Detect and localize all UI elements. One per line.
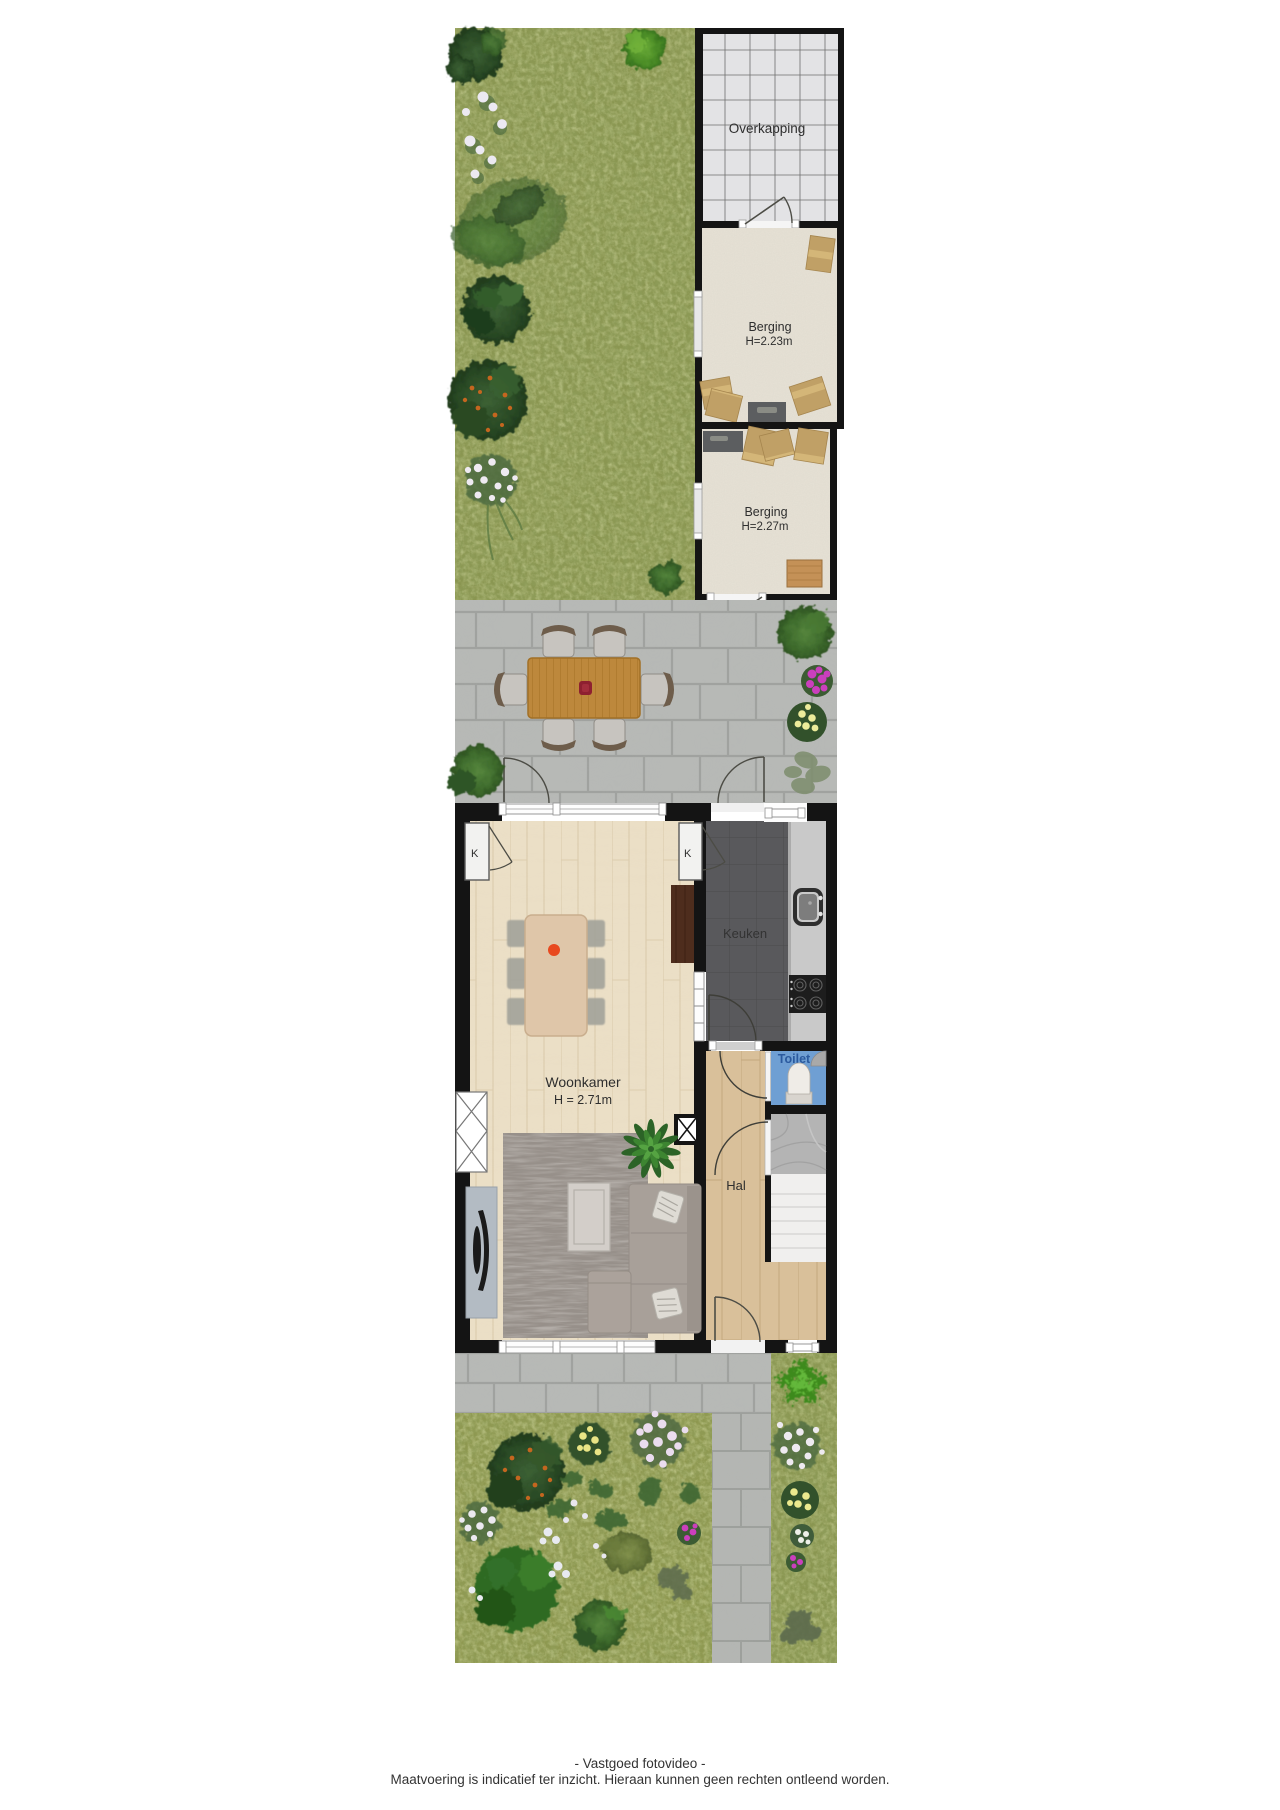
svg-text:K: K [684, 848, 692, 860]
svg-text:H=2.23m: H=2.23m [746, 336, 793, 348]
svg-text:Hal: Hal [726, 1178, 746, 1193]
svg-text:H=2.27m: H=2.27m [742, 521, 789, 533]
svg-text:K: K [471, 848, 479, 860]
svg-text:Overkapping: Overkapping [729, 121, 806, 136]
svg-text:Maatvoering is indicatief ter: Maatvoering is indicatief ter inzicht. H… [390, 1772, 889, 1787]
svg-text:Keuken: Keuken [723, 926, 767, 941]
svg-text:- Vastgoed fotovideo -: - Vastgoed fotovideo - [574, 1756, 705, 1771]
svg-text:H = 2.71m: H = 2.71m [554, 1093, 612, 1107]
svg-text:Berging: Berging [748, 320, 791, 334]
svg-text:Woonkamer: Woonkamer [545, 1074, 621, 1090]
svg-text:Berging: Berging [744, 505, 787, 519]
